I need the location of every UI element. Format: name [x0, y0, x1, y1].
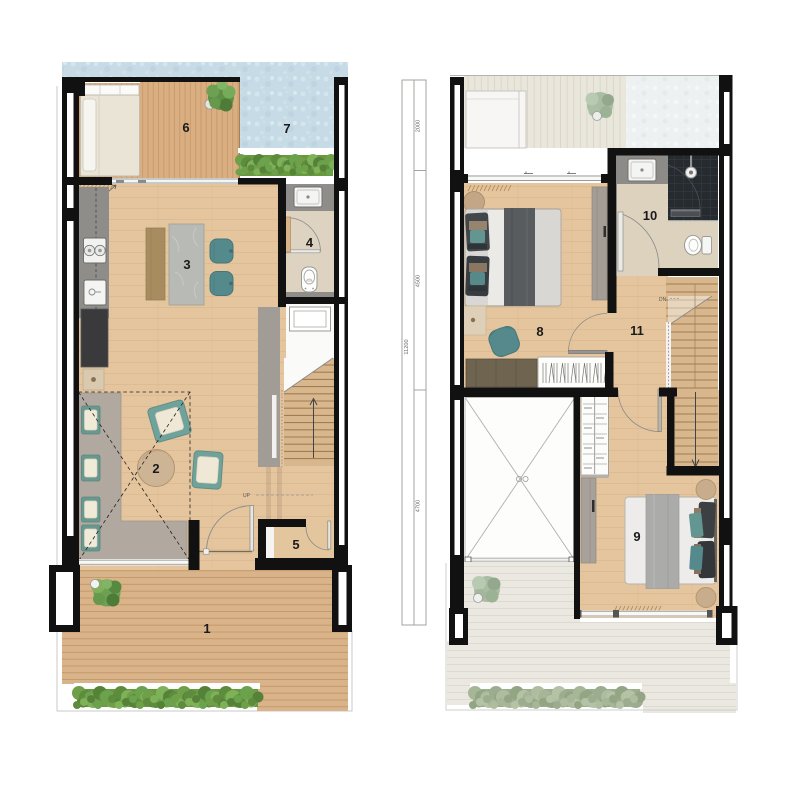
svg-text:5: 5: [292, 537, 299, 552]
svg-text:UP: UP: [243, 493, 251, 499]
svg-text:11: 11: [630, 323, 644, 338]
svg-text:6: 6: [182, 120, 189, 135]
svg-text:4: 4: [306, 235, 314, 250]
svg-text:9: 9: [633, 529, 640, 544]
svg-text:2: 2: [152, 461, 159, 476]
svg-text:3: 3: [183, 257, 190, 272]
svg-text:11200: 11200: [404, 339, 410, 354]
svg-text:DN: DN: [659, 297, 667, 303]
svg-text:7: 7: [283, 121, 290, 136]
svg-text:4500: 4500: [416, 275, 422, 287]
svg-text:8: 8: [536, 324, 543, 339]
svg-text:10: 10: [643, 208, 657, 223]
svg-text:4700: 4700: [416, 500, 422, 512]
svg-text:1: 1: [203, 621, 210, 636]
svg-text:2000: 2000: [416, 120, 422, 132]
